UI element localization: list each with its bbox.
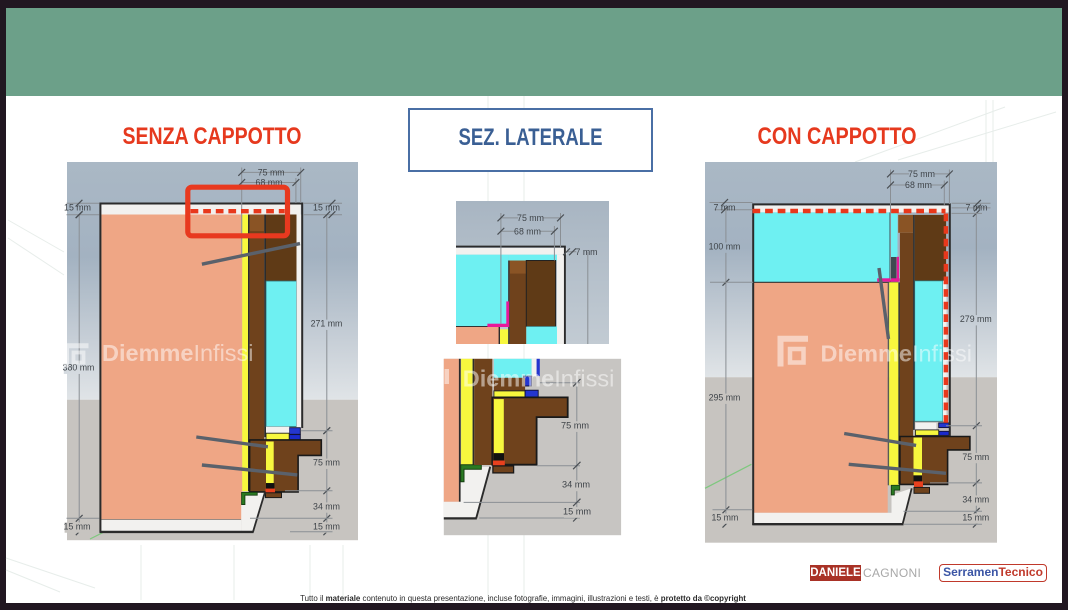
svg-text:15 mm: 15 mm [64,203,91,213]
svg-text:68 mm: 68 mm [514,226,541,236]
svg-text:15 mm: 15 mm [711,512,738,522]
svg-text:7 mm: 7 mm [966,202,988,212]
svg-text:75 mm: 75 mm [962,452,989,462]
svg-text:75 mm: 75 mm [561,420,589,430]
svg-text:295 mm: 295 mm [709,393,741,403]
svg-text:15 mm: 15 mm [962,512,989,522]
svg-text:68 mm: 68 mm [905,180,932,190]
svg-text:DiemmeInfissi: DiemmeInfissi [821,341,973,367]
svg-text:34 mm: 34 mm [313,501,340,511]
svg-text:34 mm: 34 mm [962,494,989,504]
svg-text:75 mm: 75 mm [908,169,935,179]
svg-text:75 mm: 75 mm [258,168,285,178]
svg-text:75 mm: 75 mm [313,458,340,468]
svg-text:15 mm: 15 mm [64,521,91,531]
svg-text:271 mm: 271 mm [311,319,343,329]
svg-text:75 mm: 75 mm [517,213,544,223]
svg-text:DiemmeInfissi: DiemmeInfissi [463,365,615,391]
svg-text:34 mm: 34 mm [562,480,590,490]
svg-text:DiemmeInfissi: DiemmeInfissi [102,340,254,366]
svg-text:15 mm: 15 mm [313,521,340,531]
svg-text:7 mm: 7 mm [576,247,598,257]
svg-text:15 mm: 15 mm [313,203,340,213]
svg-text:100 mm: 100 mm [709,241,741,251]
svg-text:15 mm: 15 mm [563,506,591,516]
svg-text:7 mm: 7 mm [714,202,736,212]
svg-text:279 mm: 279 mm [960,314,992,324]
